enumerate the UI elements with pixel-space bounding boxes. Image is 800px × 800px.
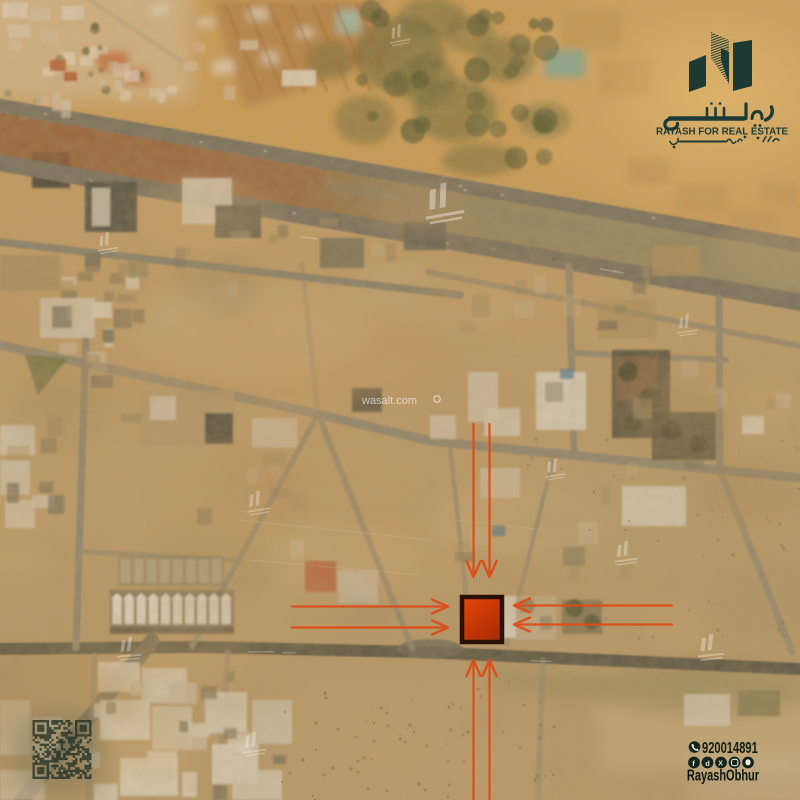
- svg-text:RAYASH FOR REAL ESTATE: RAYASH FOR REAL ESTATE: [656, 126, 788, 138]
- svg-text:wasalt.com: wasalt.com: [361, 395, 417, 407]
- svg-text:920014891: 920014891: [702, 739, 758, 756]
- svg-text:RayashObhur: RayashObhur: [687, 767, 760, 784]
